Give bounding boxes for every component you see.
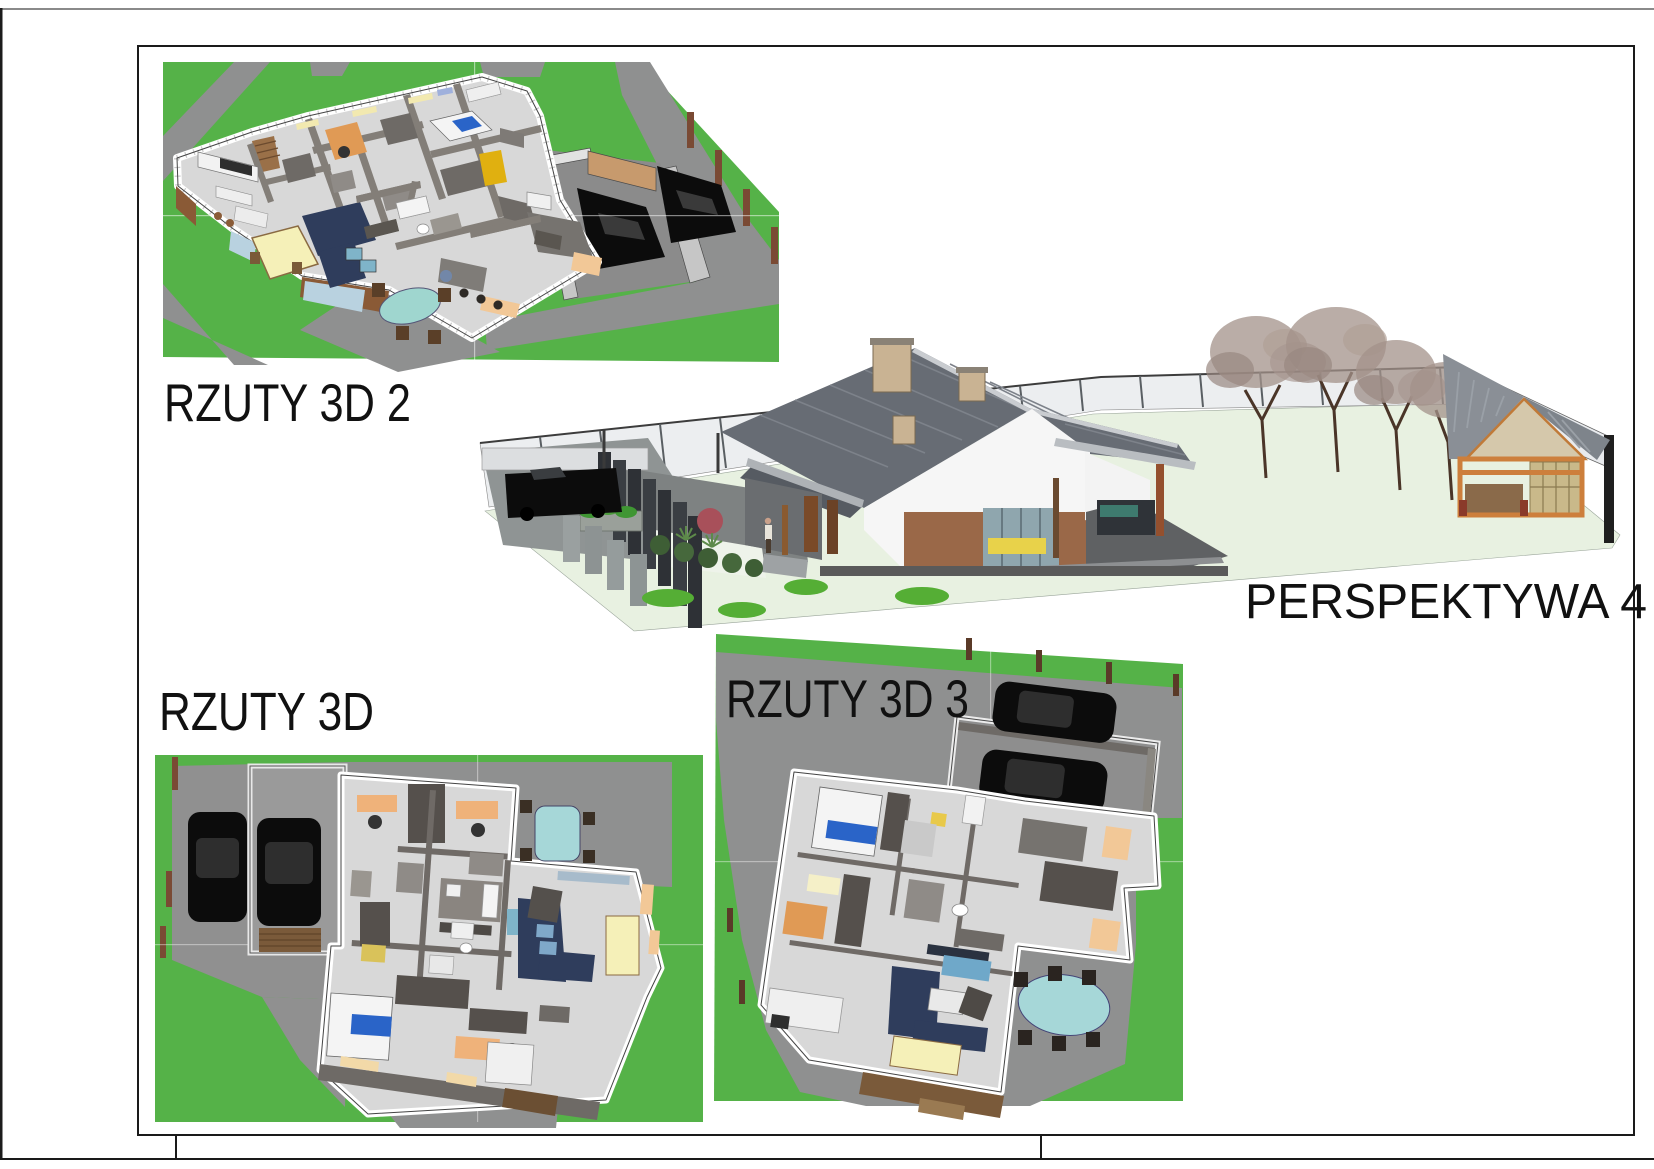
- svg-text:RZUTY 3D 3: RZUTY 3D 3: [726, 670, 969, 729]
- svg-text:RZUTY 3D: RZUTY 3D: [159, 682, 374, 742]
- svg-text:RZUTY 3D 2: RZUTY 3D 2: [164, 374, 411, 433]
- svg-text:PERSPEKTYWA 4: PERSPEKTYWA 4: [1245, 575, 1647, 629]
